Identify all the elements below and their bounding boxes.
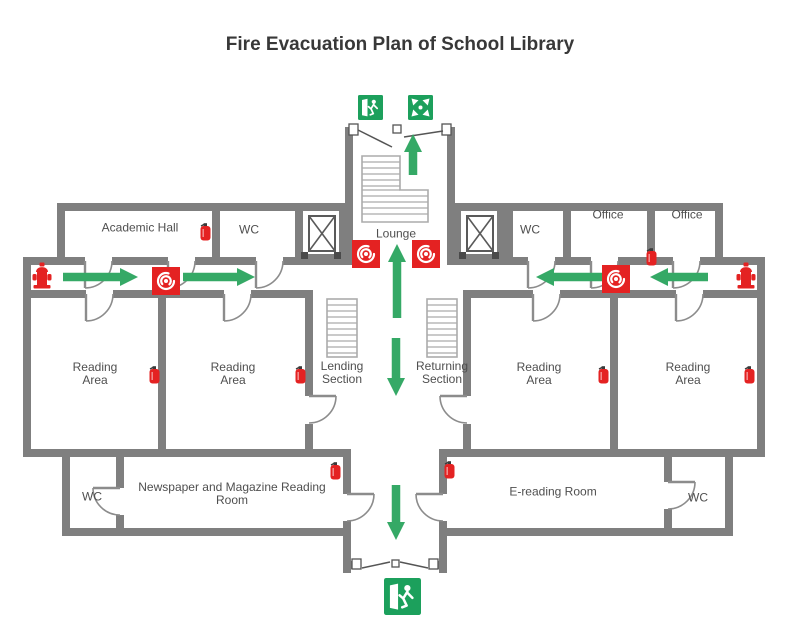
room-label-lending-section: Lending Section [313, 360, 371, 386]
room-label-returning-section: Returning Section [406, 360, 478, 386]
route-arrow-up [404, 134, 422, 175]
room-label-office-1: Office [592, 209, 623, 222]
door [676, 289, 703, 321]
assembly-point-sign-icon [408, 95, 433, 120]
room-label-reading-area-4: Reading Area [659, 361, 717, 387]
elevator-left [299, 207, 343, 259]
double-door [352, 559, 438, 571]
stairs-returning [427, 299, 457, 357]
emergency-exit-sign-icon [358, 95, 383, 120]
page-title: Fire Evacuation Plan of School Library [226, 34, 574, 56]
door [224, 289, 251, 321]
emergency-exit-sign-icon [384, 578, 421, 615]
fire-extinguisher-icon [445, 461, 455, 478]
room-label-reading-area-3: Reading Area [510, 361, 568, 387]
room-label-academic-hall: Academic Hall [102, 222, 179, 235]
door [416, 494, 448, 521]
room-label-reading-area-1: Reading Area [66, 361, 124, 387]
door [304, 396, 336, 424]
fire-extinguisher-icon [745, 366, 755, 383]
room-label-wc-bottom-right: WC [688, 492, 708, 505]
door [533, 289, 560, 321]
room-label-wc-top-right: WC [520, 224, 540, 237]
fire-alarm-icon [412, 240, 440, 268]
elevator-right [457, 207, 501, 259]
stairs-lending [327, 299, 357, 357]
fire-hydrant-icon [33, 263, 52, 289]
door [673, 256, 700, 288]
room-label-office-2: Office [671, 209, 702, 222]
route-arrow-up [388, 244, 406, 318]
door [256, 256, 283, 288]
room-label-wc-top-left: WC [239, 224, 259, 237]
room-label-wc-bottom-left: WC [82, 491, 102, 504]
fire-extinguisher-icon [331, 462, 341, 479]
door [86, 289, 113, 321]
fire-alarm-icon [152, 267, 180, 295]
fire-hydrant-icon [737, 263, 756, 289]
fire-alarm-icon [352, 240, 380, 268]
fire-extinguisher-icon [296, 366, 306, 383]
stairs-main [362, 156, 428, 222]
door [342, 494, 374, 521]
route-arrow-left [650, 268, 708, 286]
room-label-reading-area-2: Reading Area [204, 361, 262, 387]
door [440, 396, 472, 424]
route-arrow-down [387, 485, 405, 540]
fire-extinguisher-icon [599, 366, 609, 383]
fire-extinguisher-icon [201, 223, 211, 240]
double-door [349, 124, 451, 147]
fire-alarm-icons [152, 240, 630, 295]
fire-alarm-icon [602, 265, 630, 293]
room-label-lounge: Lounge [376, 228, 416, 241]
room-label-newspaper-room: Newspaper and Magazine Reading Room [132, 481, 332, 507]
route-arrow-left [536, 268, 608, 286]
floor-plan-svg [0, 0, 800, 630]
room-label-e-reading-room: E-reading Room [509, 486, 596, 499]
floor-plan: Fire Evacuation Plan of School Library A… [0, 0, 800, 630]
route-arrow-down [387, 338, 405, 396]
door [85, 256, 112, 288]
